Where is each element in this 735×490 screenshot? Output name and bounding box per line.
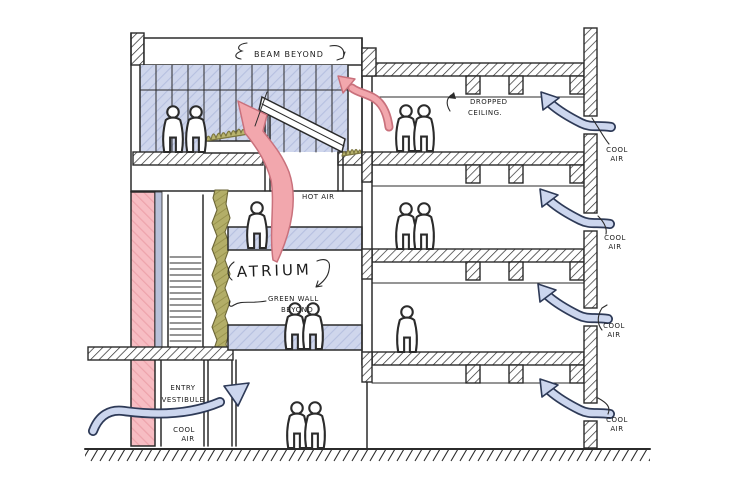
- entry-vestibule-label: ENTRY: [170, 384, 195, 392]
- cool-air-label-level2: AIR: [607, 331, 620, 339]
- dropped-ceiling-label: DROPPED: [470, 98, 508, 106]
- cool-air-arrow-level1: [540, 379, 610, 414]
- cool-air-label-level1: COOL: [606, 416, 628, 424]
- atrium-space: [228, 202, 362, 448]
- section-drawing: BEAM BEYOND DROPPED CEILING. HOT AIR ATR…: [0, 0, 735, 490]
- entry-canopy: [88, 347, 233, 360]
- cool-air-label-level3: COOL: [604, 234, 626, 242]
- cool-air-label-entry: AIR: [181, 435, 194, 443]
- right-building: [362, 28, 597, 448]
- green-wall-leader: [229, 301, 266, 306]
- green-wall-label: BEYOND: [281, 306, 313, 314]
- cool-air-label-level4: AIR: [610, 155, 623, 163]
- cool-air-label-level1: AIR: [610, 425, 623, 433]
- cool-air-arrow-level3: [540, 189, 610, 224]
- stair-shaft: [168, 195, 203, 347]
- floor-slab: [372, 152, 584, 165]
- stair-treads: [170, 257, 201, 341]
- dropped-ceiling-label: CEILING.: [468, 109, 502, 117]
- cool-air-label-entry: COOL: [173, 426, 195, 434]
- hot-air-label: HOT AIR: [302, 193, 335, 201]
- building-section-sketch: BEAM BEYOND DROPPED CEILING. HOT AIR ATR…: [0, 0, 735, 490]
- atrium-label: ATRIUM: [237, 260, 313, 281]
- beam-stubs: [466, 76, 584, 383]
- dropped-ceiling-arrowhead: [448, 92, 456, 99]
- roof-beam-band: [144, 38, 362, 65]
- ground-line: [85, 449, 650, 462]
- cool-air-label-level3: AIR: [608, 243, 621, 251]
- parapet-wall: [131, 33, 144, 65]
- green-wall-label: GREEN WALL: [268, 295, 319, 303]
- glass-strip: [155, 192, 162, 347]
- atrium-side-wall: [362, 48, 376, 448]
- entry-vestibule-label: VESTIBULE: [162, 396, 205, 404]
- cool-air-label-level2: COOL: [603, 322, 625, 330]
- atrium-leader: [316, 260, 330, 287]
- roof-slab: [362, 63, 584, 76]
- cool-air-label-level4: COOL: [606, 146, 628, 154]
- penthouse-floor-slab: [133, 152, 263, 165]
- floor-slab: [372, 352, 584, 365]
- exterior-wall: [584, 28, 597, 448]
- floor-slab: [372, 249, 584, 262]
- beam-beyond-label: BEAM BEYOND: [254, 50, 324, 59]
